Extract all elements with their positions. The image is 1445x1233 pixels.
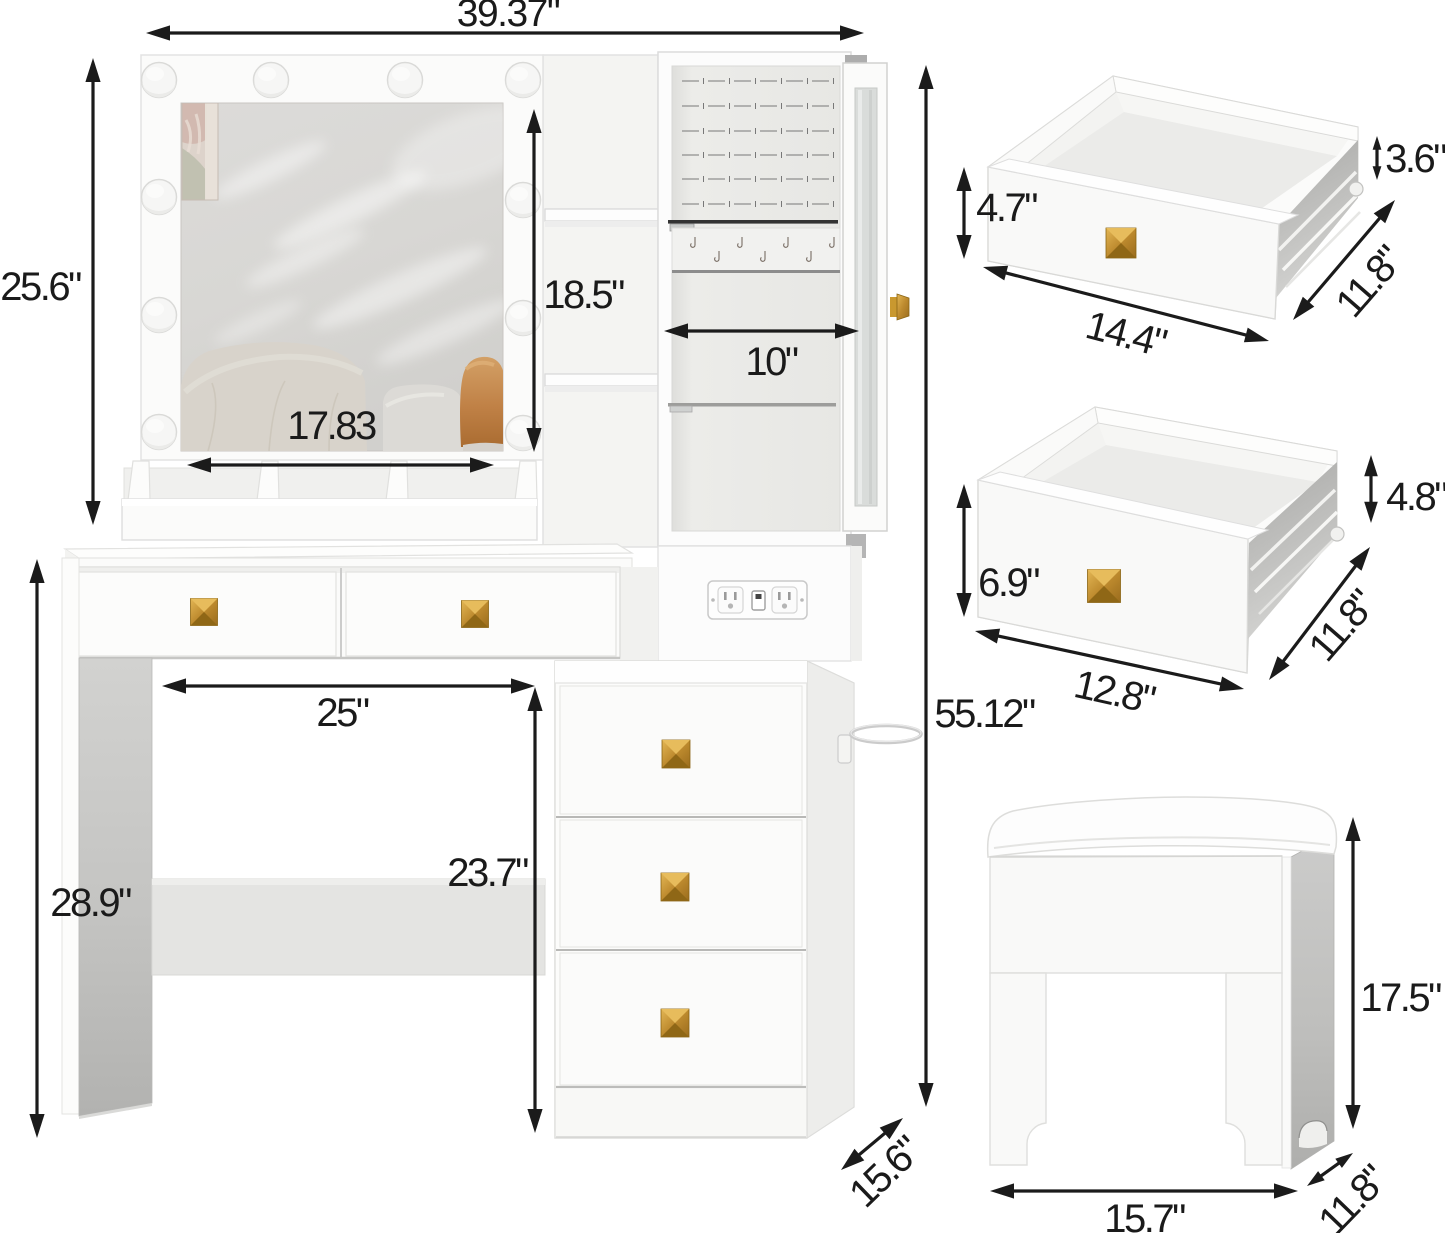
svg-text:18.5": 18.5" — [543, 273, 624, 317]
svg-text:28.9": 28.9" — [50, 881, 131, 925]
svg-text:25.6": 25.6" — [0, 265, 81, 309]
svg-text:25": 25" — [316, 691, 368, 735]
svg-text:55.12": 55.12" — [934, 692, 1035, 736]
svg-text:17.5": 17.5" — [1360, 976, 1441, 1020]
svg-text:4.8": 4.8" — [1386, 475, 1445, 519]
svg-text:39.37": 39.37" — [457, 0, 560, 35]
svg-text:17.83: 17.83 — [287, 404, 376, 448]
svg-text:4.7": 4.7" — [976, 186, 1037, 230]
svg-text:23.7": 23.7" — [447, 851, 528, 895]
svg-text:15.7": 15.7" — [1104, 1197, 1185, 1233]
svg-text:10": 10" — [745, 340, 797, 384]
svg-text:3.6": 3.6" — [1385, 137, 1445, 181]
svg-text:6.9": 6.9" — [978, 561, 1039, 605]
